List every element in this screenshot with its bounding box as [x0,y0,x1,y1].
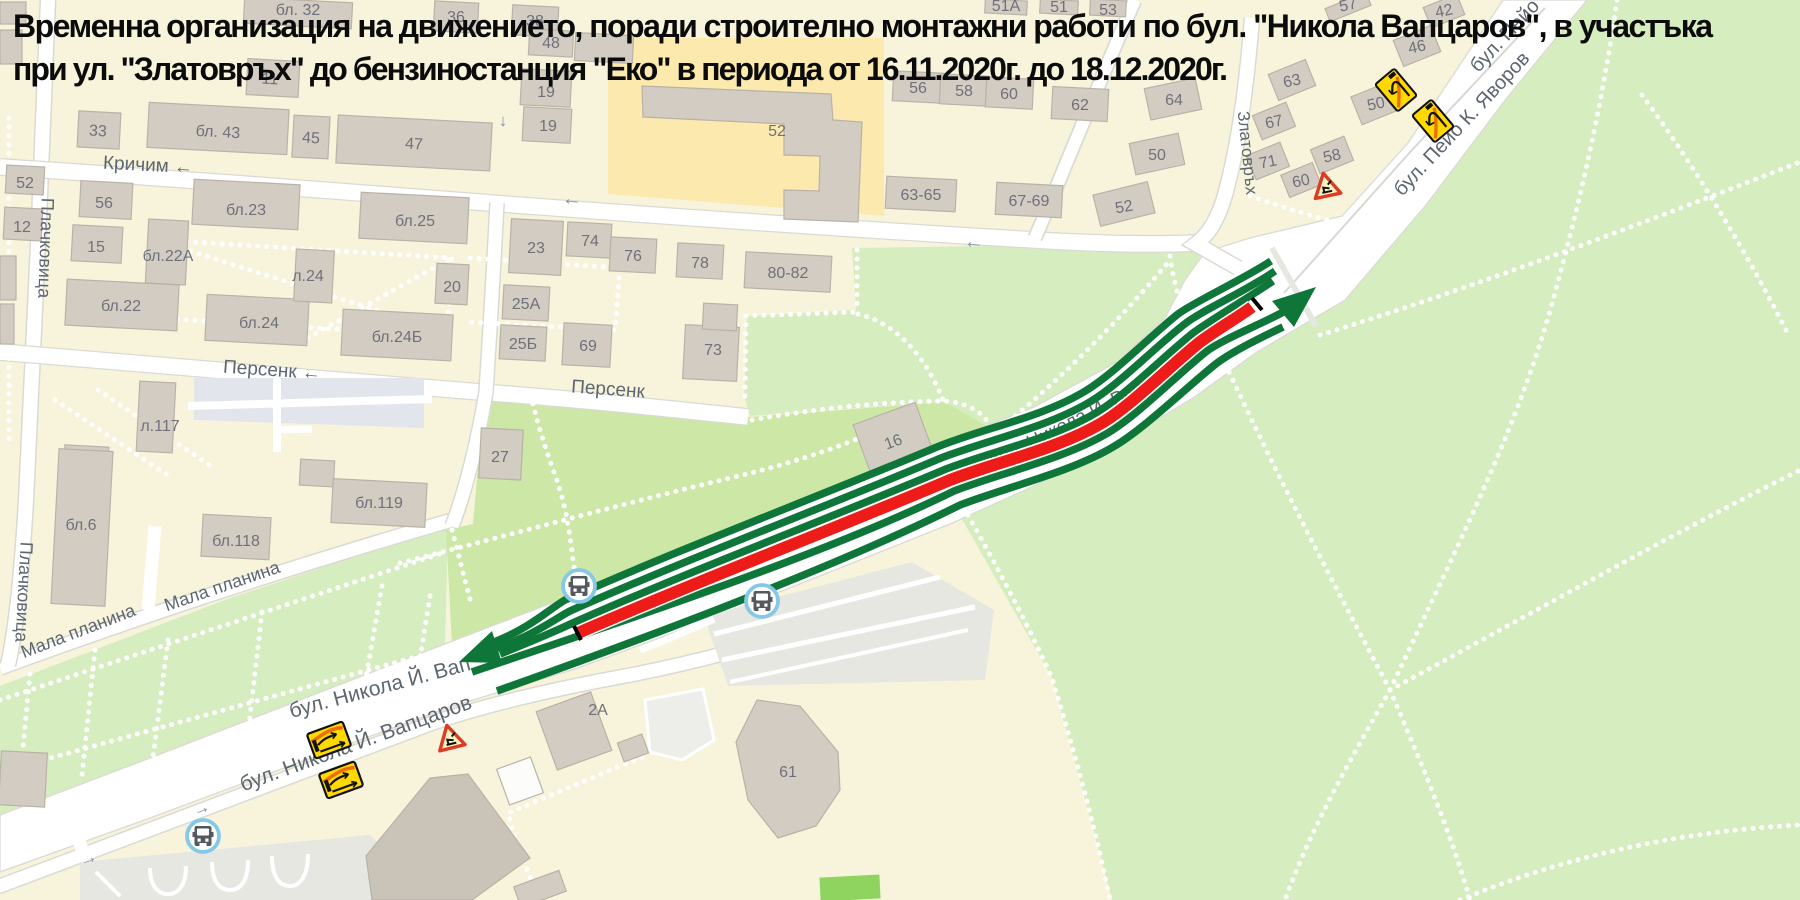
svg-text:27: 27 [491,449,509,466]
svg-text:60: 60 [1000,86,1018,103]
svg-text:бл.119: бл.119 [355,495,403,512]
svg-text:78: 78 [691,255,709,272]
svg-text:при ул. "Златовръх" до бензино: при ул. "Златовръх" до бензиностанция "Е… [13,51,1228,87]
svg-text:74: 74 [581,233,599,250]
svg-text:52: 52 [16,175,34,192]
svg-text:15: 15 [87,239,105,256]
svg-text:←: ← [561,187,582,210]
svg-text:бл.24Б: бл.24Б [372,329,423,346]
svg-text:73: 73 [704,342,722,359]
svg-text:л.117: л.117 [140,418,179,435]
svg-text:Плачковица: Плачковица [34,197,58,299]
svg-text:47: 47 [405,136,424,154]
svg-text:76: 76 [624,248,642,265]
svg-text:67: 67 [1264,112,1285,132]
svg-text:бл.23: бл.23 [226,202,266,219]
svg-text:бл.24: бл.24 [239,315,279,332]
svg-text:56: 56 [95,195,113,212]
svg-text:80-82: 80-82 [768,265,809,282]
svg-text:←: ← [963,230,985,254]
svg-text:20: 20 [443,279,461,296]
svg-text:62: 62 [1071,97,1089,114]
svg-text:бл.22: бл.22 [101,298,141,315]
svg-text:бл.6: бл.6 [65,517,96,534]
svg-text:45: 45 [302,130,321,148]
svg-text:60: 60 [1291,171,1312,191]
svg-text:бл.22А: бл.22А [143,248,194,265]
svg-text:Временна организация на движен: Временна организация на движението, пора… [13,8,1713,44]
svg-text:бл. 43: бл. 43 [195,123,240,142]
svg-text:63-65: 63-65 [901,187,942,204]
svg-text:↓: ↓ [499,111,508,130]
svg-text:71: 71 [1258,152,1279,172]
svg-text:52: 52 [1114,198,1135,218]
svg-text:64: 64 [1165,92,1183,109]
svg-text:58: 58 [1322,146,1343,166]
svg-text:52: 52 [768,123,786,140]
svg-text:50: 50 [1148,147,1166,164]
svg-text:2А: 2А [588,702,608,719]
svg-text:69: 69 [579,338,597,355]
svg-text:63: 63 [1282,71,1303,91]
svg-text:бл.25: бл.25 [395,213,435,230]
svg-text:61: 61 [779,764,797,781]
svg-text:23: 23 [527,240,545,257]
svg-text:12: 12 [13,219,31,236]
svg-text:бл.118: бл.118 [212,533,260,550]
svg-text:25А: 25А [512,296,541,313]
svg-text:19: 19 [539,118,557,135]
svg-text:25Б: 25Б [509,336,537,353]
svg-text:50: 50 [1366,94,1387,114]
svg-text:33: 33 [89,123,108,141]
svg-text:67-69: 67-69 [1009,193,1050,210]
svg-text:л.24: л.24 [292,268,324,285]
